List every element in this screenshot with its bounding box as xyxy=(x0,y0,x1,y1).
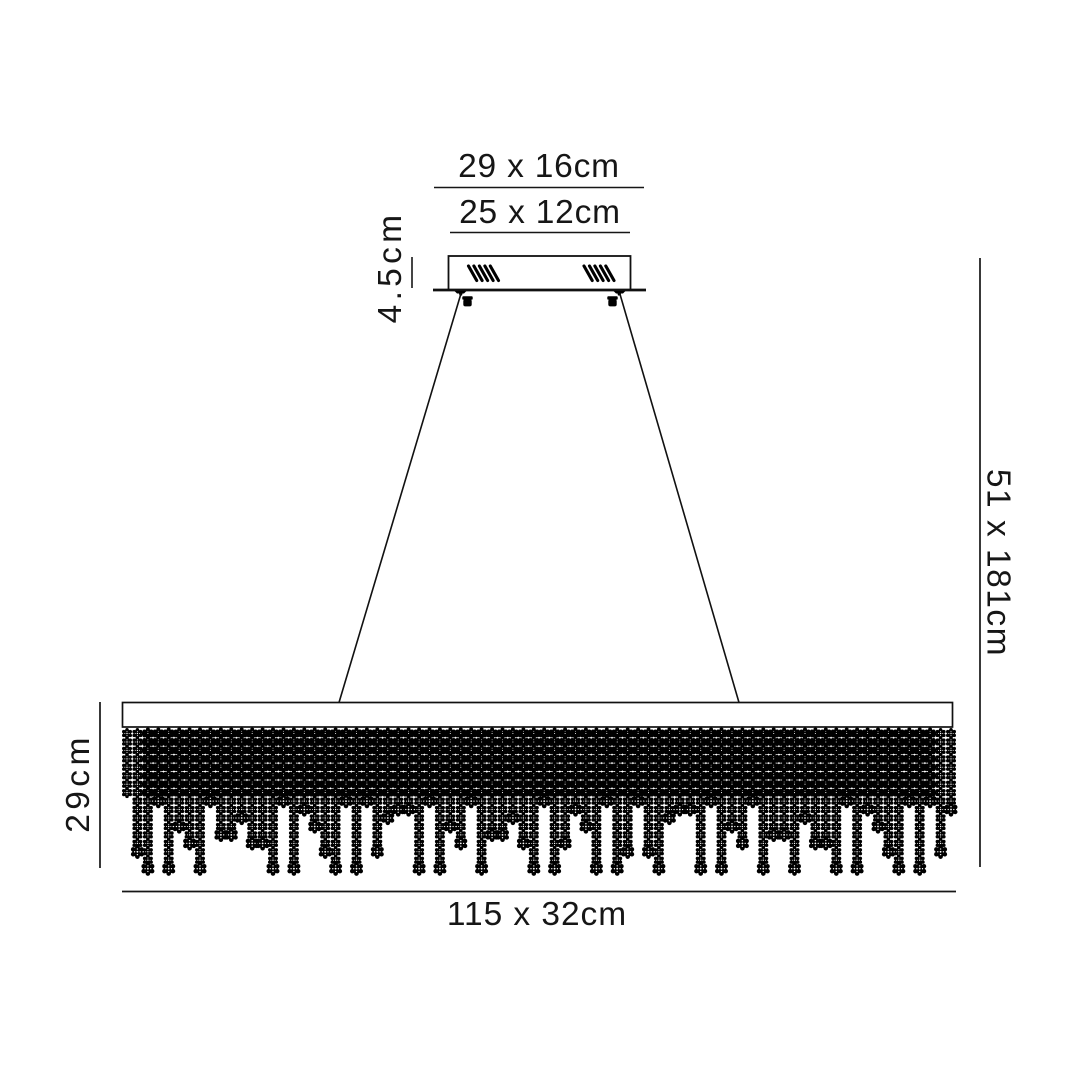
svg-text:25 x 12cm: 25 x 12cm xyxy=(459,194,621,231)
svg-text:51 x 181cm: 51 x 181cm xyxy=(980,469,1017,657)
svg-text:29 x 16cm: 29 x 16cm xyxy=(458,148,620,185)
svg-text:4.5cm: 4.5cm xyxy=(372,211,409,324)
svg-text:29cm: 29cm xyxy=(60,733,97,833)
svg-text:115 x 32cm: 115 x 32cm xyxy=(447,896,627,933)
